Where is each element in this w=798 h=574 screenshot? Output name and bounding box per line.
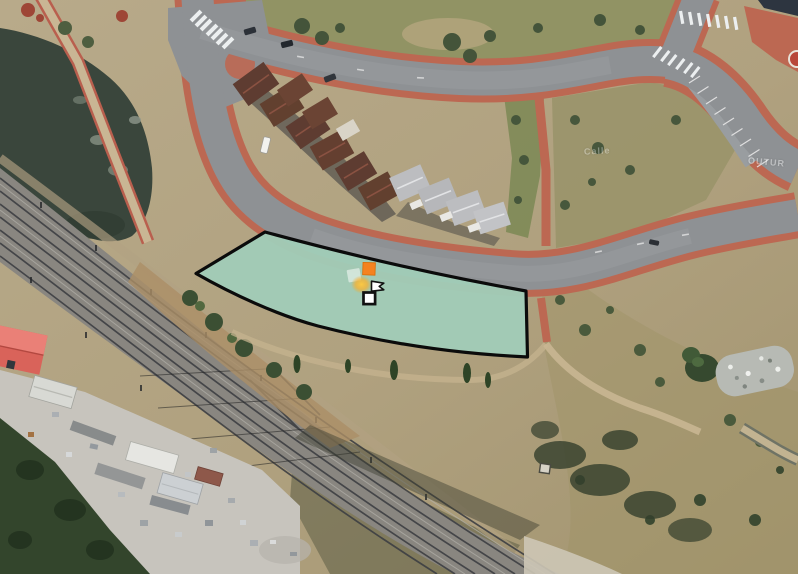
- marker-glow: [351, 276, 372, 294]
- aerial-map-view: Calle OUTUR: [0, 0, 798, 574]
- satellite-scene: [0, 0, 798, 574]
- hut: [539, 463, 550, 473]
- vertex-marker[interactable]: [364, 293, 376, 305]
- roundabout-island: [789, 51, 798, 67]
- selection-handle[interactable]: [363, 262, 376, 275]
